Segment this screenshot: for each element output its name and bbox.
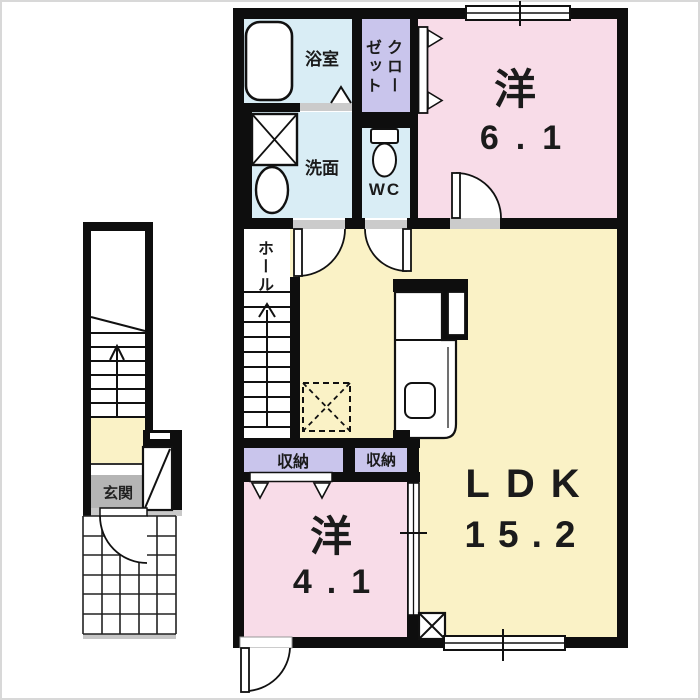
bath-label: 浴室 bbox=[292, 47, 352, 67]
storage-right-label: 収納 bbox=[355, 447, 407, 472]
exterior-stairs-icon bbox=[91, 317, 145, 417]
shaft-box-icon bbox=[419, 613, 445, 639]
storage-door-icon bbox=[250, 473, 332, 499]
closet-label-col1: クロー bbox=[381, 27, 403, 107]
ldk-size-label: 15.2 bbox=[430, 514, 610, 556]
bedroom2-name-label: 洋 bbox=[298, 509, 364, 557]
hall-stairs-icon bbox=[244, 292, 290, 428]
bedroom1-size-label: 6.1 bbox=[458, 118, 583, 158]
bedroom2-door-swing bbox=[240, 637, 292, 692]
wc-label: WC bbox=[361, 180, 409, 200]
wc-door-swing bbox=[365, 229, 411, 271]
hall-label: ホール bbox=[250, 230, 276, 304]
ldk-name-label: LDK bbox=[440, 462, 605, 506]
kitchen-counter-icon bbox=[393, 292, 465, 448]
alcove-vent-mark bbox=[150, 433, 170, 439]
bedroom1-door-swing bbox=[452, 173, 501, 218]
closet-door-icon bbox=[419, 27, 443, 113]
bath-fold-door-icon bbox=[331, 87, 351, 103]
storage-left-label: 収納 bbox=[242, 447, 344, 472]
kitchen-sink-icon bbox=[405, 383, 435, 418]
washroom-door-swing bbox=[294, 229, 345, 276]
toilet-icon bbox=[371, 129, 398, 177]
window-top-icon bbox=[466, 1, 570, 26]
bathtub-icon bbox=[246, 22, 292, 100]
wall-kitchen-stub bbox=[393, 430, 410, 448]
sliding-door-icon bbox=[400, 483, 427, 615]
kitchen-pass-through bbox=[448, 292, 465, 335]
shoe-cabinet-icon bbox=[143, 447, 172, 510]
washing-machine-icon bbox=[252, 114, 297, 165]
washroom-label: 洗面 bbox=[292, 156, 352, 176]
entrance-label: 玄関 bbox=[92, 482, 144, 502]
window-bottom-icon bbox=[444, 629, 565, 661]
sink-icon bbox=[256, 167, 288, 213]
bedroom1-name-label: 洋 bbox=[482, 62, 548, 110]
floor-plan: 浴室 洗面 クロー ゼット WC ホール 洋 6.1 収納 収納 LDK 15.… bbox=[0, 0, 700, 700]
closet-label-col2: ゼット bbox=[360, 27, 382, 107]
bedroom2-size-label: 4.1 bbox=[269, 562, 394, 602]
refrigerator-space-icon bbox=[303, 383, 350, 431]
